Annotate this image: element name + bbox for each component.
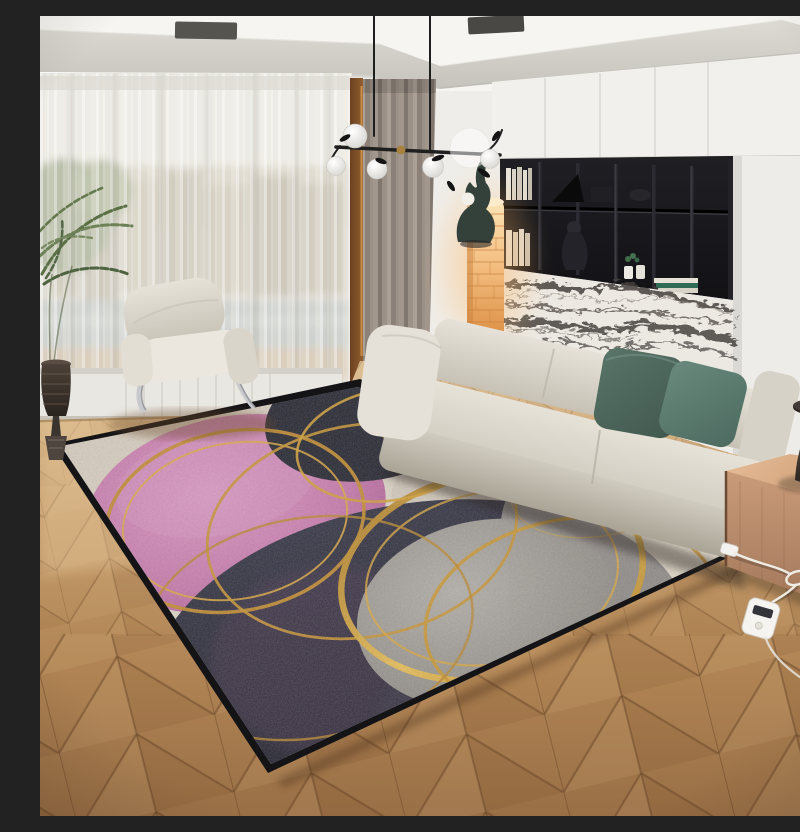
vignette — [40, 16, 800, 816]
living-room-photo: Modern living room with abstract pink, n… — [40, 16, 800, 816]
scene-root: Modern living room with abstract pink, n… — [40, 16, 800, 816]
